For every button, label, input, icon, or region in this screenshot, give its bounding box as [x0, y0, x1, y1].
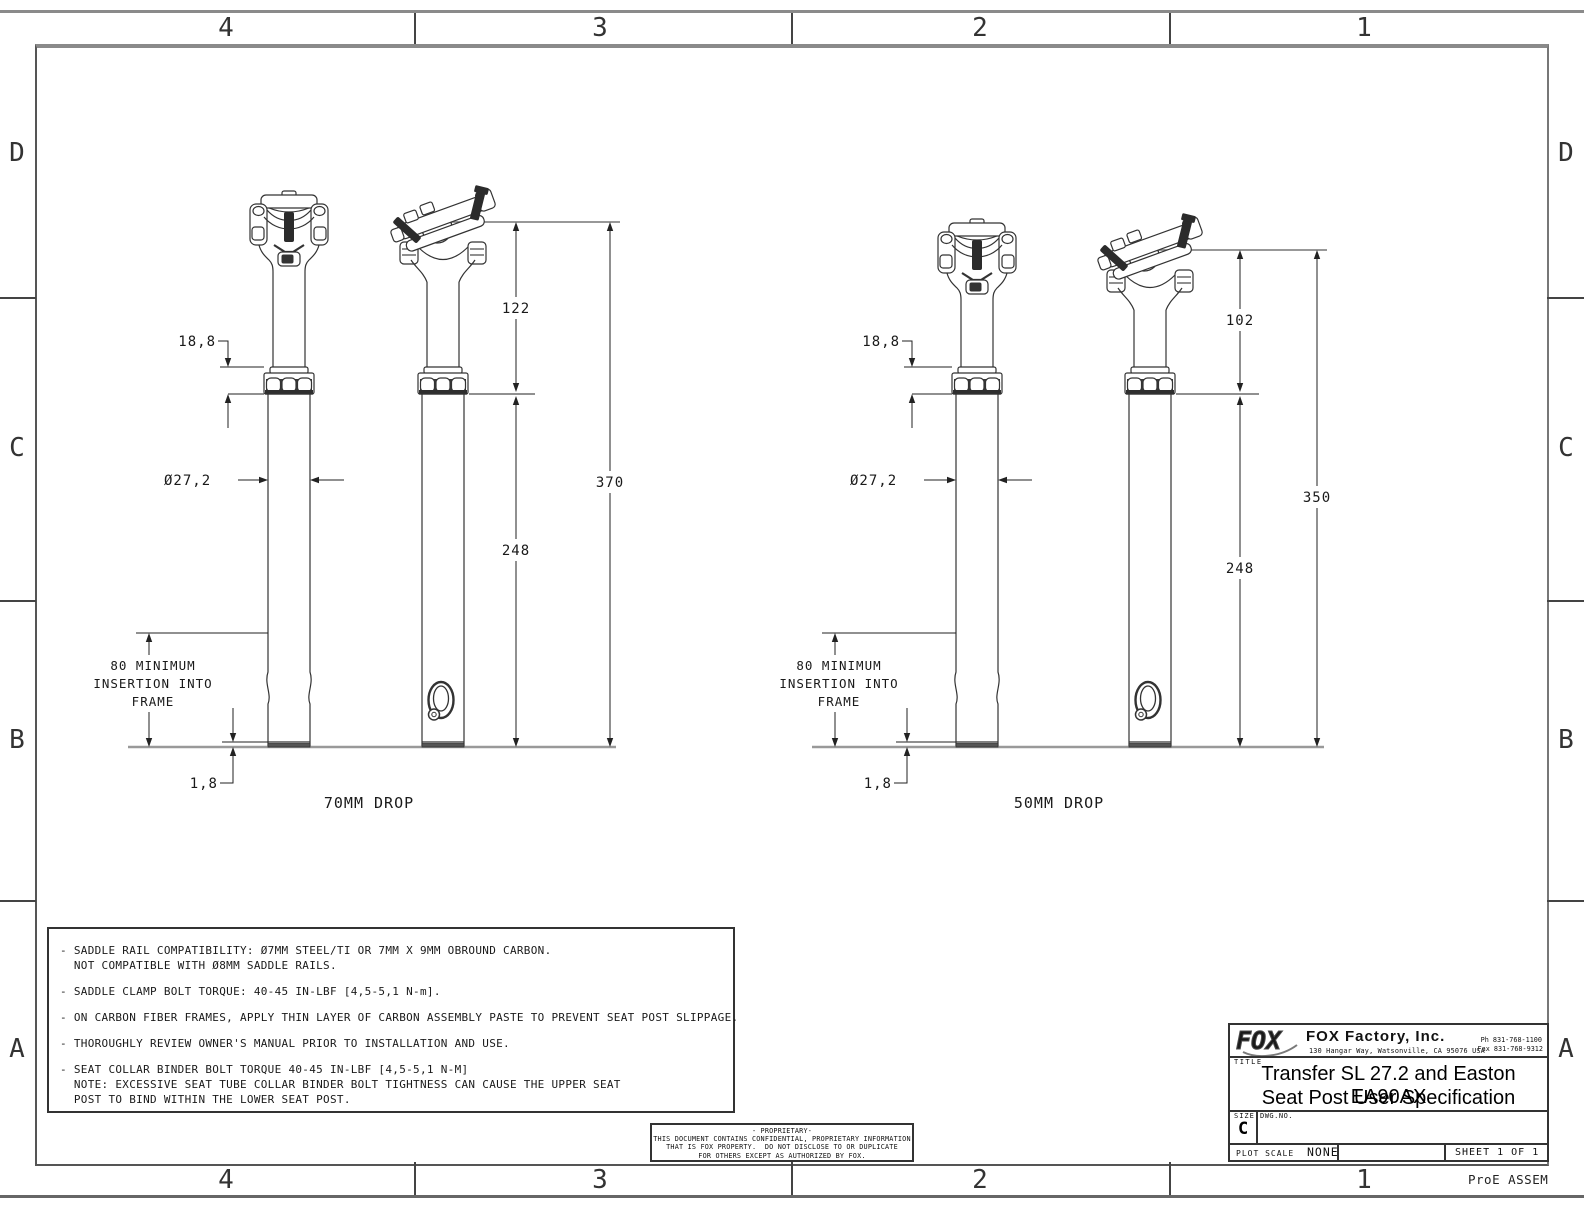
- plot-scale-label: PLOT SCALE: [1236, 1149, 1294, 1158]
- zone-row-left-A: A: [9, 1034, 25, 1064]
- drawing-title-line2: Seat Post User Specification: [1230, 1087, 1547, 1110]
- zone-tick: [1169, 13, 1171, 44]
- zone-row-right-C: C: [1558, 433, 1574, 463]
- plot-scale-value: NONE: [1307, 1145, 1339, 1159]
- zone-tick: [791, 13, 793, 44]
- company-phone: Ph 831-768-1100: [1481, 1036, 1542, 1044]
- note-line-8: [60, 1051, 733, 1062]
- zone-row-left-C: C: [9, 433, 25, 463]
- note-line-6: [60, 1025, 733, 1036]
- zone-col-top-4: 4: [218, 13, 234, 43]
- paper-edge-bottom: [0, 1195, 1584, 1198]
- fox-logo: FOX: [1233, 1026, 1305, 1059]
- note-line-9: - SEAT COLLAR BINDER BOLT TORQUE 40-45 I…: [60, 1062, 733, 1077]
- zone-row-right-B: B: [1558, 725, 1574, 755]
- zone-row-right-D: D: [1558, 138, 1574, 168]
- note-line-7: - THOROUGHLY REVIEW OWNER'S MANUAL PRIOR…: [60, 1036, 733, 1051]
- title-block: FOX FOX Factory, Inc. 130 Hangar Way, Wa…: [1228, 1023, 1549, 1162]
- proprietary-notice-box: - PROPRIETARY-THIS DOCUMENT CONTAINS CON…: [650, 1123, 914, 1162]
- proprietary-line-1: THIS DOCUMENT CONTAINS CONFIDENTIAL, PRO…: [652, 1135, 912, 1143]
- zone-tick: [1547, 297, 1584, 299]
- note-line-3: - SADDLE CLAMP BOLT TORQUE: 40-45 IN-LBF…: [60, 984, 733, 999]
- proprietary-line-0: - PROPRIETARY-: [652, 1127, 912, 1135]
- note-line-2: [60, 973, 733, 984]
- zone-col-top-3: 3: [592, 13, 608, 43]
- zone-tick: [1169, 1162, 1171, 1195]
- size-value: C: [1238, 1119, 1248, 1139]
- zone-row-left-D: D: [9, 138, 25, 168]
- zone-tick: [791, 1162, 793, 1195]
- zone-row-left-B: B: [9, 725, 25, 755]
- general-notes-box: - SADDLE RAIL COMPATIBILITY: Ø7MM STEEL/…: [47, 927, 735, 1113]
- company-address: 130 Hangar Way, Watsonville, CA 95076 US…: [1309, 1047, 1485, 1055]
- zone-tick: [1547, 900, 1584, 902]
- zone-col-bottom-4: 4: [218, 1165, 234, 1195]
- dwg-no-label: DWG.NO.: [1260, 1112, 1293, 1120]
- zone-row-right-A: A: [1558, 1034, 1574, 1064]
- zone-tick: [0, 297, 36, 299]
- proprietary-line-3: FOR OTHERS EXCEPT AS AUTHORIZED BY FOX.: [652, 1152, 912, 1160]
- zone-tick: [0, 600, 36, 602]
- proe-assem-label: ProE ASSEM: [1468, 1172, 1548, 1187]
- zone-tick: [414, 13, 416, 44]
- zone-tick: [0, 900, 36, 902]
- zone-tick: [1547, 600, 1584, 602]
- note-line-4: [60, 999, 733, 1010]
- zone-col-bottom-2: 2: [972, 1165, 988, 1195]
- zone-col-top-2: 2: [972, 13, 988, 43]
- zone-col-bottom-3: 3: [592, 1165, 608, 1195]
- sheet-number: SHEET 1 OF 1: [1455, 1147, 1539, 1158]
- zone-col-bottom-1: 1: [1356, 1165, 1372, 1195]
- fox-logo-text: FOX: [1236, 1026, 1283, 1055]
- zone-tick: [414, 1162, 416, 1195]
- proprietary-line-2: THAT IS FOX PROPERTY. DO NOT DISCLOSE TO…: [652, 1143, 912, 1151]
- drawing-sheet: 12224837080 MINIMUMINSERTION INTOFRAME18…: [0, 0, 1584, 1224]
- company-fax: Fax 831-768-9312: [1478, 1045, 1543, 1053]
- company-name: FOX Factory, Inc.: [1306, 1028, 1445, 1045]
- note-line-11: POST TO BIND WITHIN THE LOWER SEAT POST.: [60, 1092, 733, 1107]
- zone-col-top-1: 1: [1356, 13, 1372, 43]
- note-line-10: NOTE: EXCESSIVE SEAT TUBE COLLAR BINDER …: [60, 1077, 733, 1092]
- note-line-0: - SADDLE RAIL COMPATIBILITY: Ø7MM STEEL/…: [60, 943, 733, 958]
- note-line-5: - ON CARBON FIBER FRAMES, APPLY THIN LAY…: [60, 1010, 733, 1025]
- note-line-1: NOT COMPATIBLE WITH Ø8MM SADDLE RAILS.: [60, 958, 733, 973]
